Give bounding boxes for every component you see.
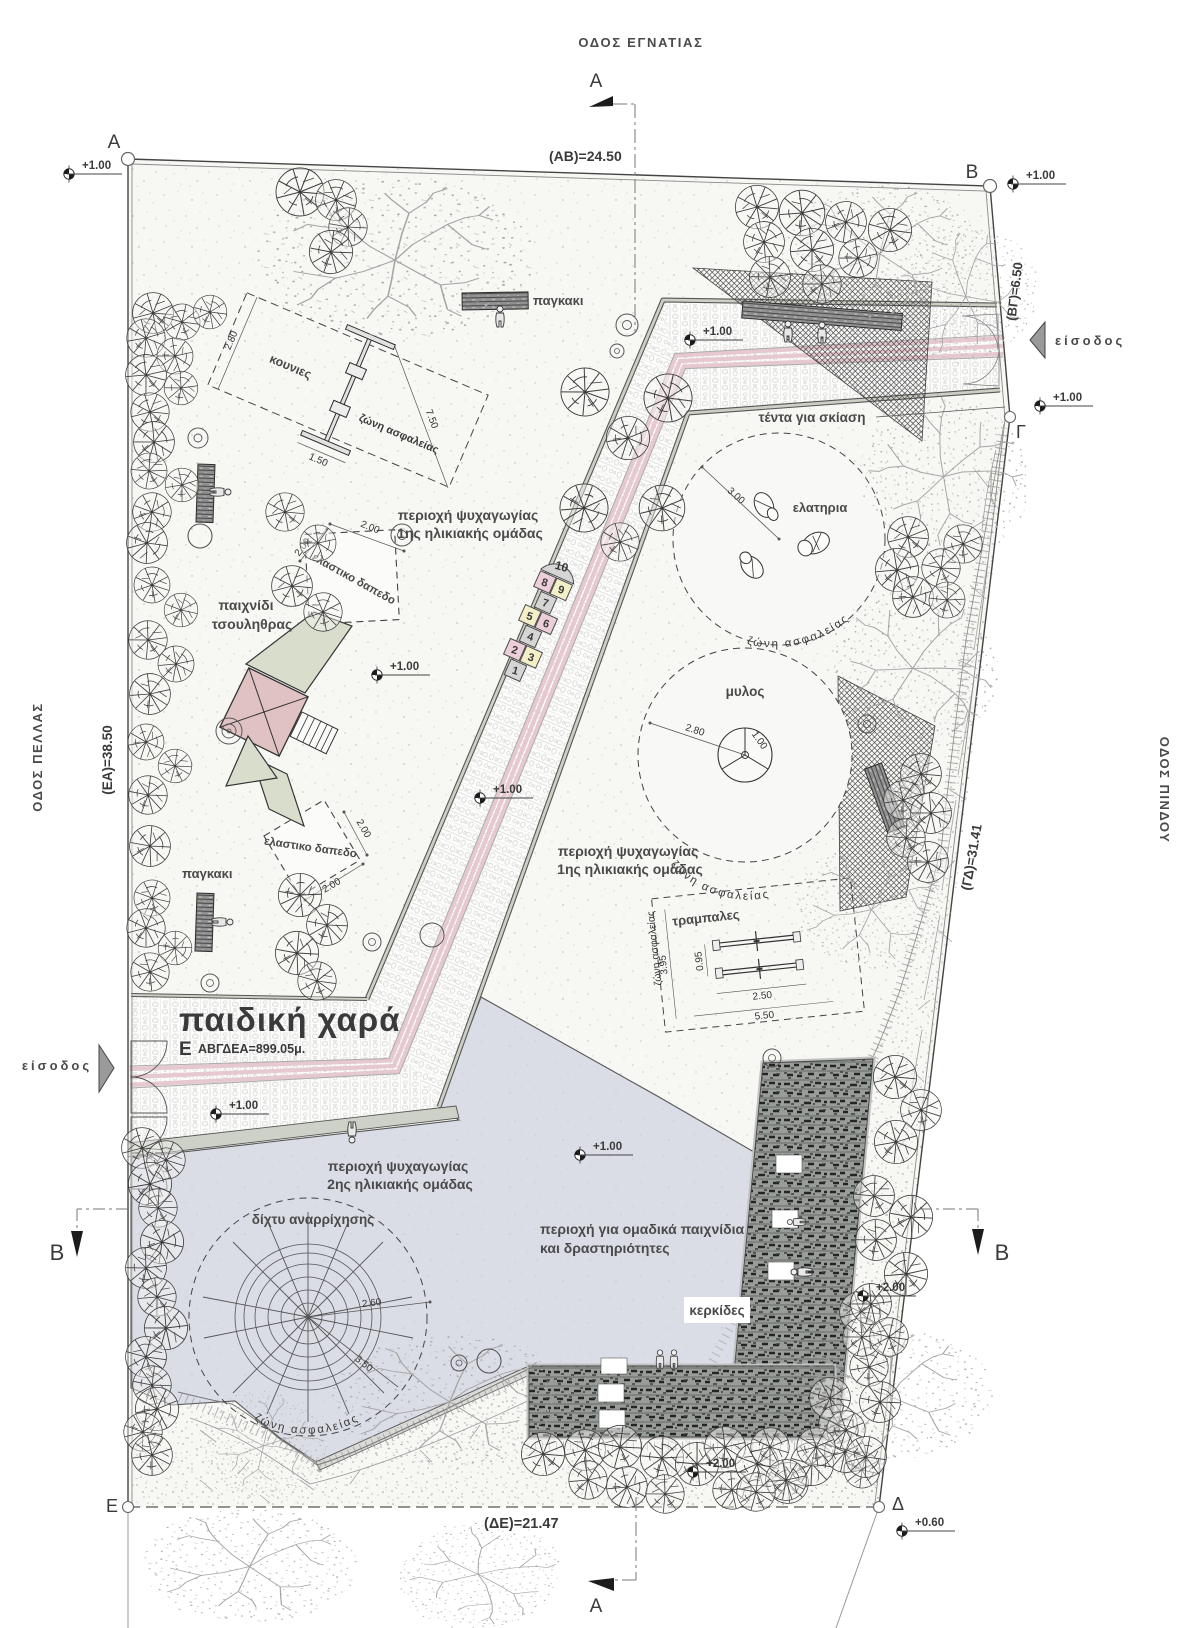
svg-text:+2.00: +2.00 xyxy=(876,1282,905,1294)
svg-text:B: B xyxy=(995,1240,1010,1265)
svg-text:E: E xyxy=(106,1496,118,1516)
svg-text:μυλος: μυλος xyxy=(726,684,765,699)
svg-text:τσουληθρας: τσουληθρας xyxy=(212,616,293,632)
svg-text:παιδική χαρά: παιδική χαρά xyxy=(179,1001,401,1038)
svg-text:περιοχή ψυχαγωγίας: περιοχή ψυχαγωγίας xyxy=(328,1158,469,1174)
svg-text:Δ: Δ xyxy=(892,1494,904,1514)
svg-text:τέντα για σκίαση: τέντα για σκίαση xyxy=(759,410,866,425)
svg-text:+1.00: +1.00 xyxy=(703,326,732,338)
svg-text:0.95: 0.95 xyxy=(693,950,706,971)
svg-text:5.50: 5.50 xyxy=(754,1010,775,1023)
svg-text:ΟΔΟΣ ΕΓΝΑΤΙΑΣ: ΟΔΟΣ ΕΓΝΑΤΙΑΣ xyxy=(578,35,703,50)
svg-text:είσοδος: είσοδος xyxy=(1055,333,1125,348)
svg-text:+2.00: +2.00 xyxy=(706,1458,735,1470)
svg-text:περιοχή για ομαδικά παιχνίδια: περιοχή για ομαδικά παιχνίδια xyxy=(540,1221,745,1237)
svg-text:+1.00: +1.00 xyxy=(593,1141,622,1153)
svg-text:δίχτυ αναρρίχησης: δίχτυ αναρρίχησης xyxy=(252,1212,374,1227)
svg-text:ΟΔΟΣ ΠΙΝΔΟΥ: ΟΔΟΣ ΠΙΝΔΟΥ xyxy=(1157,737,1172,844)
svg-text:1ης ηλικιακής ομάδας: 1ης ηλικιακής ομάδας xyxy=(397,525,543,541)
svg-text:+1.00: +1.00 xyxy=(1053,392,1082,404)
svg-text:(ΕΑ)=38.50: (ΕΑ)=38.50 xyxy=(100,725,115,794)
svg-text:+1.00: +1.00 xyxy=(82,160,111,172)
svg-text:(ΔΕ)=21.47: (ΔΕ)=21.47 xyxy=(484,1516,559,1532)
svg-text:B: B xyxy=(50,1240,65,1265)
svg-text:2ης ηλικιακής ομάδας: 2ης ηλικιακής ομάδας xyxy=(327,1176,473,1192)
svg-text:ΟΔΟΣ ΠΕΛΛΑΣ: ΟΔΟΣ ΠΕΛΛΑΣ xyxy=(30,702,45,811)
svg-text:παιχνίδι: παιχνίδι xyxy=(219,597,274,613)
svg-text:+1.00: +1.00 xyxy=(1026,170,1055,182)
svg-text:παγκακι: παγκακι xyxy=(533,293,584,308)
svg-text:περιοχή ψυχαγωγίας: περιοχή ψυχαγωγίας xyxy=(398,507,539,523)
svg-text:ελατηρια: ελατηρια xyxy=(793,500,848,515)
svg-text:+0.60: +0.60 xyxy=(915,1517,944,1529)
svg-text:και δραστηριότητες: και δραστηριότητες xyxy=(540,1240,670,1256)
svg-text:ΑΒΓΔΕΑ=899.05μ.: ΑΒΓΔΕΑ=899.05μ. xyxy=(198,1042,305,1056)
svg-text:+1.00: +1.00 xyxy=(493,784,522,796)
svg-text:1ης ηλικιακής ομάδας: 1ης ηλικιακής ομάδας xyxy=(557,861,703,877)
svg-text:παγκακι: παγκακι xyxy=(182,866,233,881)
svg-text:Ε: Ε xyxy=(179,1039,192,1060)
svg-text:Γ: Γ xyxy=(1016,422,1026,442)
svg-text:A: A xyxy=(590,1596,603,1617)
svg-text:+1.00: +1.00 xyxy=(390,661,419,673)
svg-text:περιοχή ψυχαγωγίας: περιοχή ψυχαγωγίας xyxy=(558,843,699,859)
svg-text:κερκίδες: κερκίδες xyxy=(689,1303,744,1318)
svg-text:A: A xyxy=(590,71,603,92)
svg-text:2.50: 2.50 xyxy=(752,990,773,1003)
svg-text:+1.00: +1.00 xyxy=(229,1100,258,1112)
svg-text:(ΑΒ)=24.50: (ΑΒ)=24.50 xyxy=(549,148,622,164)
svg-text:είσοδος: είσοδος xyxy=(22,1058,92,1073)
svg-text:B: B xyxy=(966,162,979,183)
svg-text:A: A xyxy=(108,132,121,153)
